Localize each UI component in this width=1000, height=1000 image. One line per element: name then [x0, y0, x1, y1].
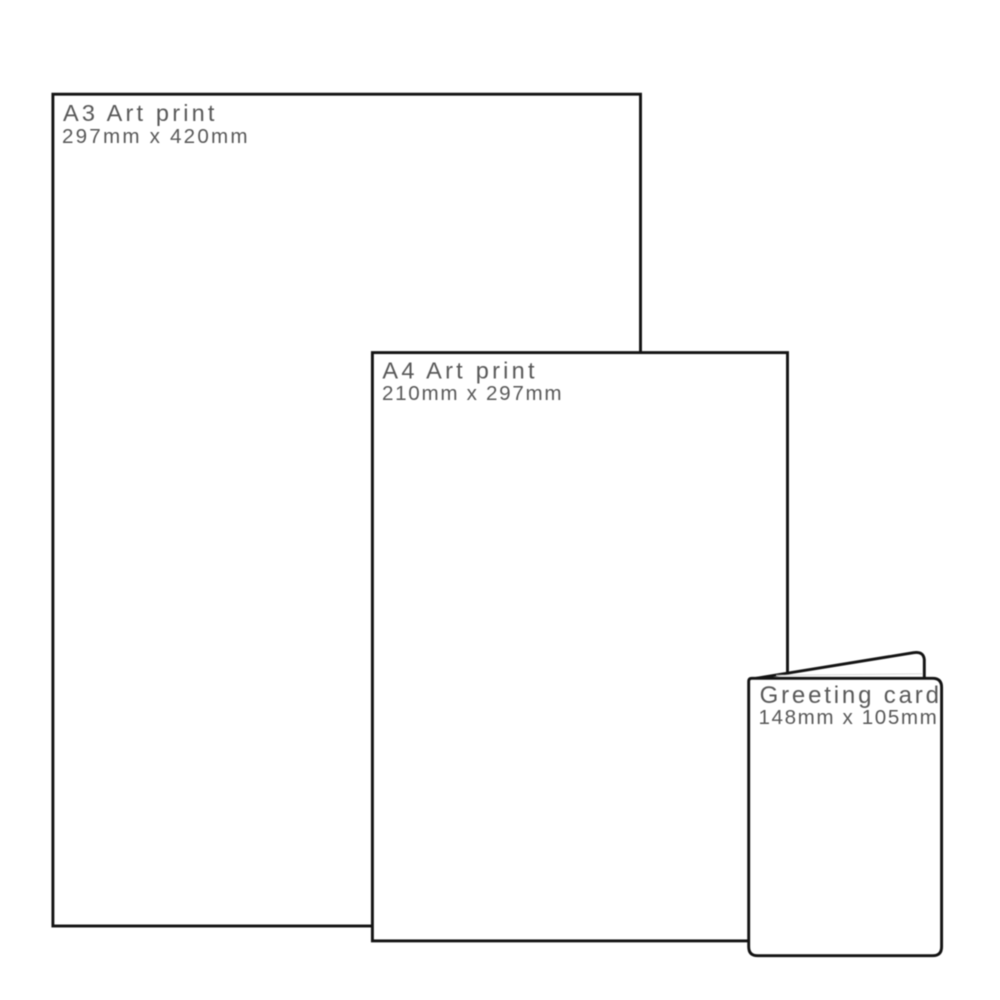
svg-text:A3 Art print: A3 Art print	[63, 100, 218, 126]
svg-text:A4 Art print: A4 Art print	[382, 358, 537, 384]
svg-text:210mm x 297mm: 210mm x 297mm	[382, 382, 563, 405]
svg-text:148mm x 105mm: 148mm x 105mm	[759, 706, 939, 729]
svg-text:297mm x 420mm: 297mm x 420mm	[62, 125, 250, 148]
